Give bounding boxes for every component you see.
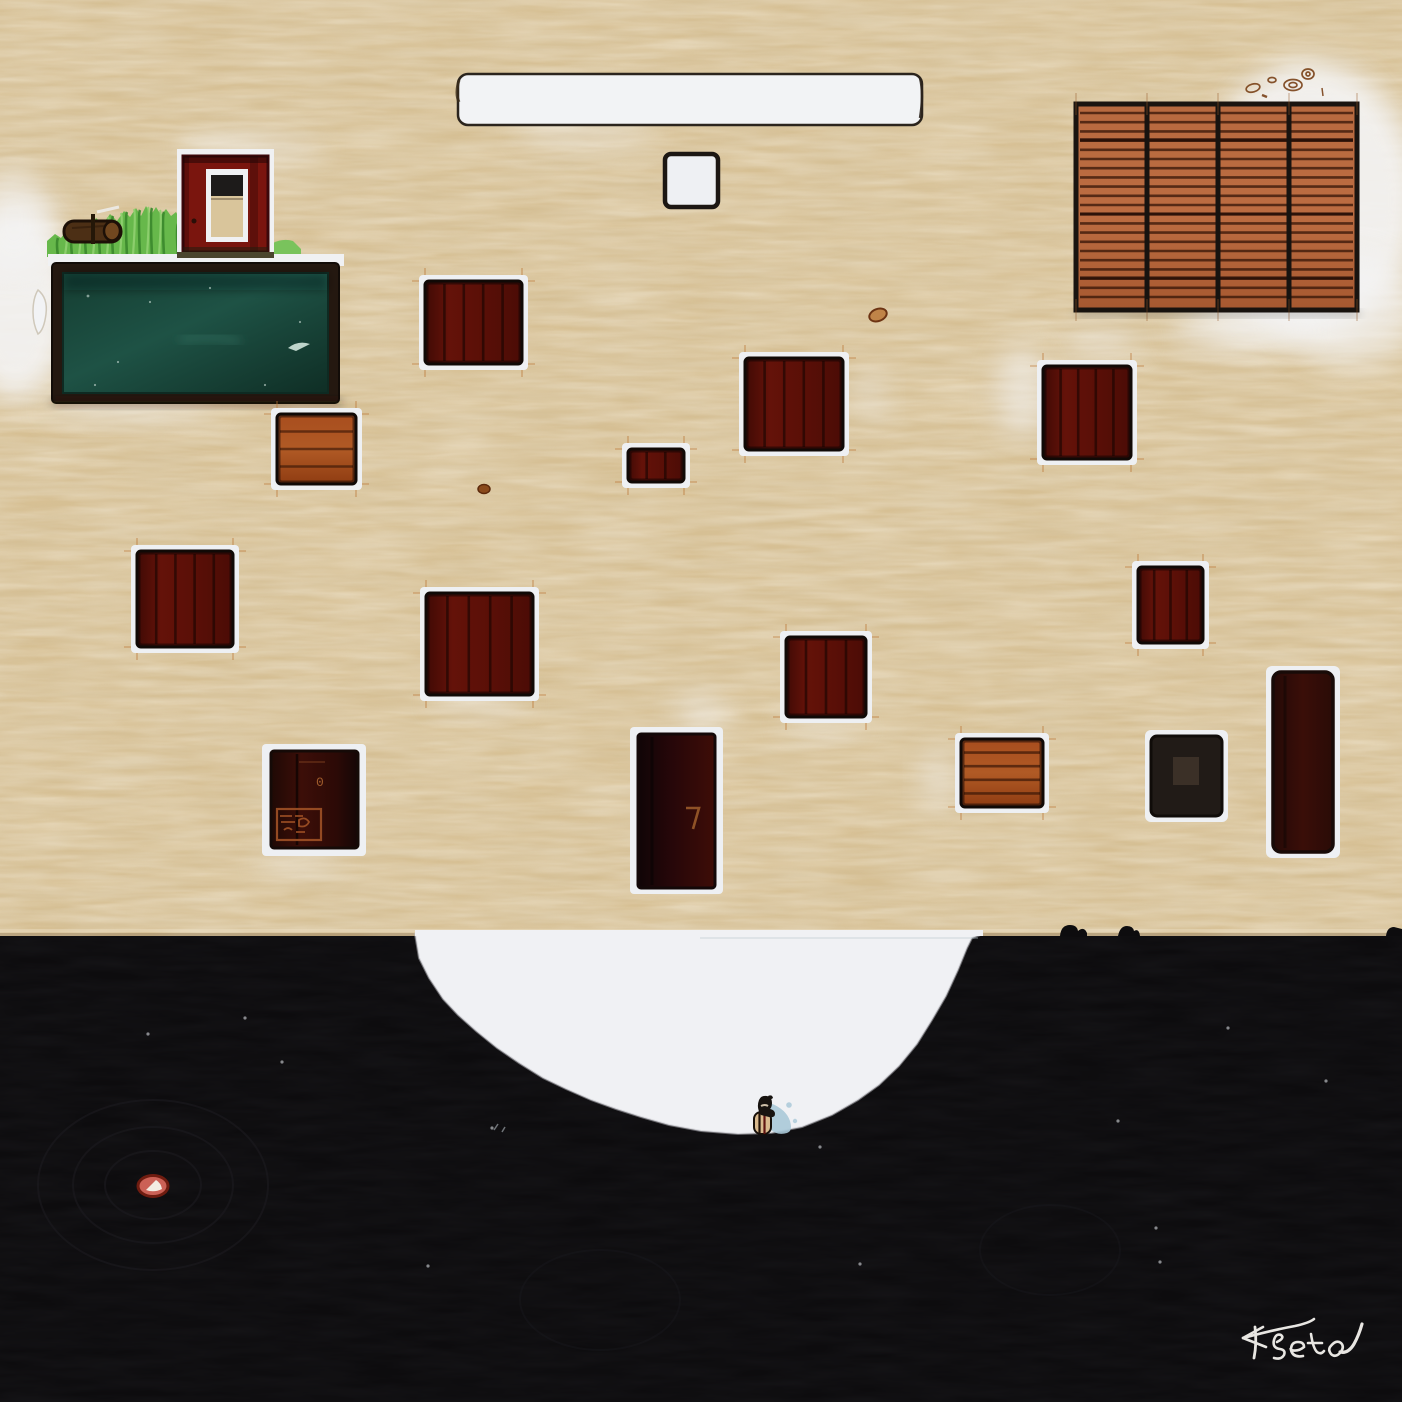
svg-text:0: 0 <box>316 775 324 790</box>
